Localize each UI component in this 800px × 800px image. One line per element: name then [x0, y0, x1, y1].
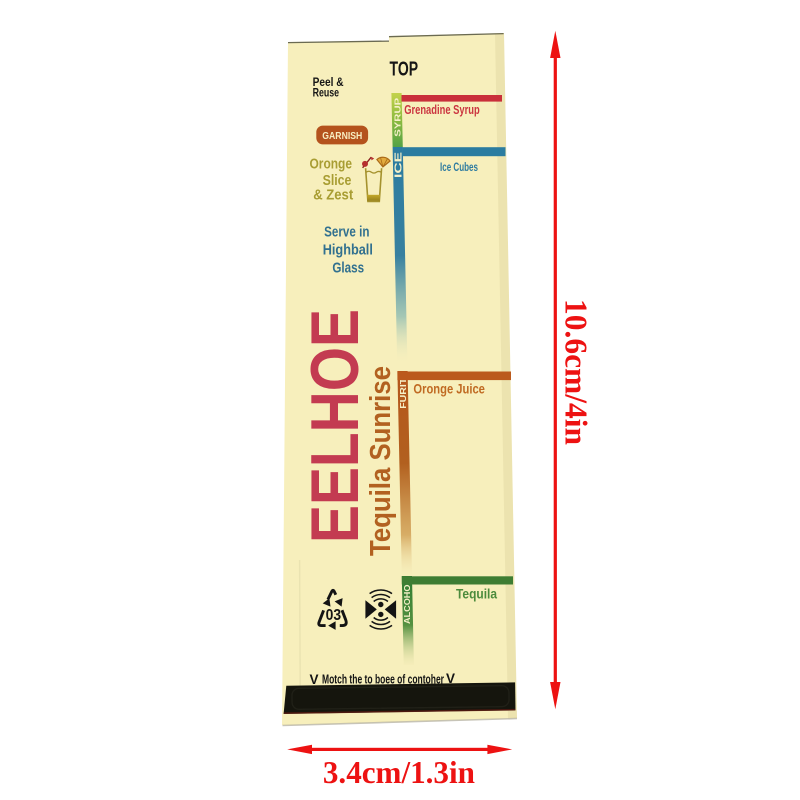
svg-text:Highball: Highball: [323, 242, 373, 259]
svg-text:Tequila Sunrise: Tequila Sunrise: [365, 366, 397, 556]
svg-text:Reuse: Reuse: [313, 85, 340, 99]
svg-text:Serve in: Serve in: [324, 224, 369, 241]
svg-text:Slice: Slice: [323, 173, 352, 189]
svg-text:3.4cm/1.3in: 3.4cm/1.3in: [323, 754, 475, 790]
svg-text:EELHOE: EELHOE: [297, 309, 373, 543]
svg-text:03: 03: [326, 607, 342, 624]
svg-text:Oronge: Oronge: [310, 157, 353, 173]
svg-text:Ice Cubes: Ice Cubes: [440, 160, 478, 174]
svg-text:ALCOHOL: ALCOHOL: [403, 579, 412, 624]
svg-text:SYRUP: SYRUP: [392, 97, 402, 136]
svg-text:TOP: TOP: [390, 58, 419, 80]
svg-text:V: V: [310, 672, 319, 687]
svg-text:10.6cm/4in: 10.6cm/4in: [559, 299, 595, 445]
svg-text:Tequila: Tequila: [456, 587, 497, 602]
svg-text:GARNISH: GARNISH: [322, 131, 362, 142]
svg-text:FURIT: FURIT: [399, 378, 408, 409]
svg-text:Oronge Juice: Oronge Juice: [413, 382, 485, 397]
svg-text:Grenadine Syrup: Grenadine Syrup: [404, 103, 480, 117]
svg-text:& Zest: & Zest: [313, 188, 353, 204]
svg-text:Glass: Glass: [332, 260, 364, 277]
